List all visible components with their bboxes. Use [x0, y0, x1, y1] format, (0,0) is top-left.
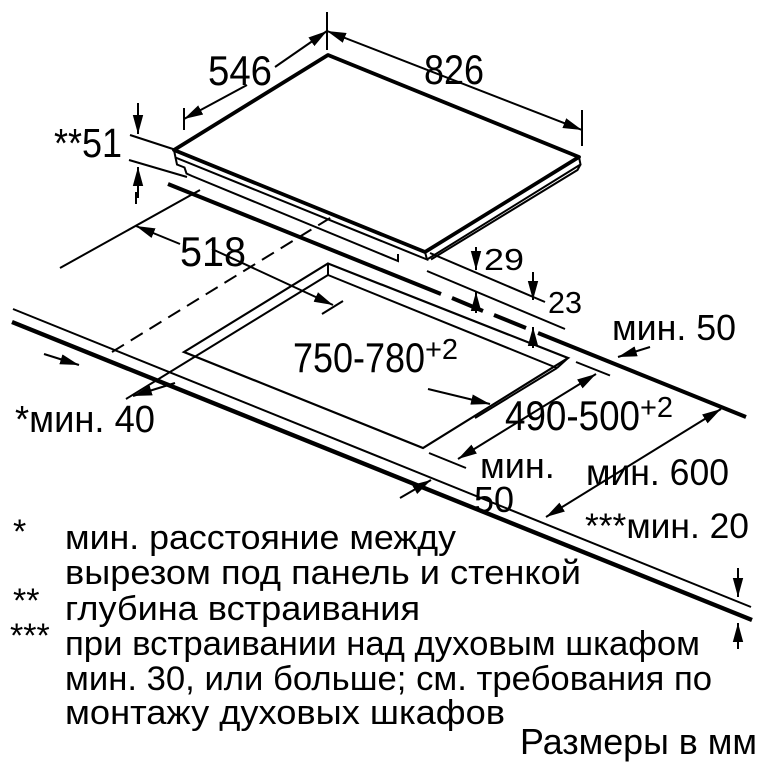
svg-text:**: **: [13, 582, 39, 620]
svg-text:***: ***: [10, 617, 50, 655]
svg-text:*: *: [13, 513, 26, 551]
svg-text:при встраивании над духовым шк: при встраивании над духовым шкафом: [65, 625, 700, 663]
svg-text:мин. 50: мин. 50: [612, 307, 736, 348]
svg-text:мин. расстояние между: мин. расстояние между: [65, 519, 456, 557]
svg-text:23: 23: [548, 285, 582, 320]
svg-text:29: 29: [484, 242, 524, 277]
svg-text:***мин. 20: ***мин. 20: [585, 507, 749, 546]
svg-text:**51: **51: [54, 120, 122, 166]
svg-text:мин. 30, или больше; см. требо: мин. 30, или больше; см. требования по: [65, 660, 712, 698]
svg-text:вырезом под панель и стенкой: вырезом под панель и стенкой: [65, 554, 581, 592]
svg-text:546: 546: [208, 47, 272, 94]
svg-text:Размеры в мм: Размеры в мм: [520, 721, 757, 762]
svg-text:826: 826: [424, 46, 484, 93]
svg-text:*мин. 40: *мин. 40: [15, 399, 155, 441]
svg-text:монтажу духовых шкафов: монтажу духовых шкафов: [65, 694, 505, 732]
svg-text:мин. 600: мин. 600: [586, 452, 729, 493]
svg-text:518: 518: [180, 228, 246, 275]
svg-text:50: 50: [474, 479, 514, 520]
svg-text:глубина встраивания: глубина встраивания: [65, 590, 420, 628]
